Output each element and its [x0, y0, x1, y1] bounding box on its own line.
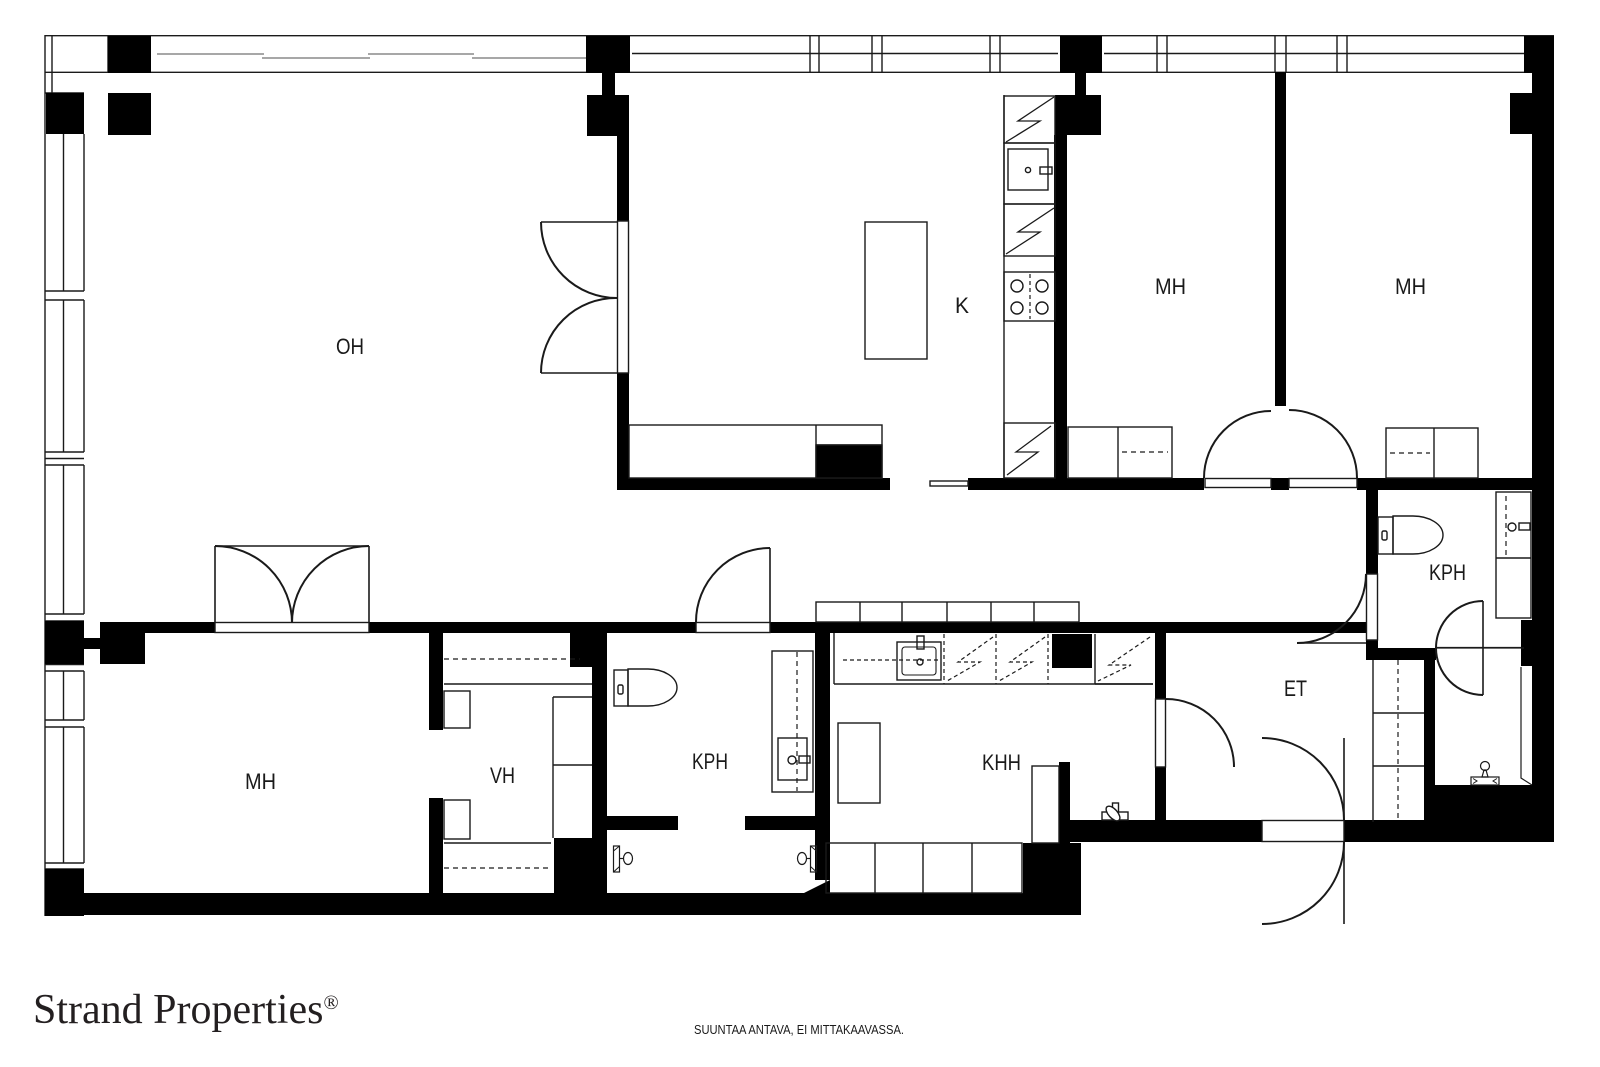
svg-text:MH: MH — [245, 769, 276, 794]
svg-text:K: K — [955, 293, 969, 318]
svg-text:MH: MH — [1155, 274, 1186, 299]
svg-text:MH: MH — [1395, 274, 1426, 299]
svg-text:SUUNTAA ANTAVA, EI MITTAKAAVAS: SUUNTAA ANTAVA, EI MITTAKAAVASSA. — [694, 1022, 904, 1037]
svg-text:KHH: KHH — [982, 750, 1021, 775]
svg-text:KPH: KPH — [1429, 560, 1466, 585]
svg-text:ET: ET — [1284, 676, 1307, 701]
svg-text:Strand Properties®: Strand Properties® — [33, 987, 339, 1033]
svg-text:OH: OH — [336, 334, 364, 359]
svg-text:VH: VH — [490, 763, 515, 788]
svg-text:KPH: KPH — [692, 749, 728, 774]
